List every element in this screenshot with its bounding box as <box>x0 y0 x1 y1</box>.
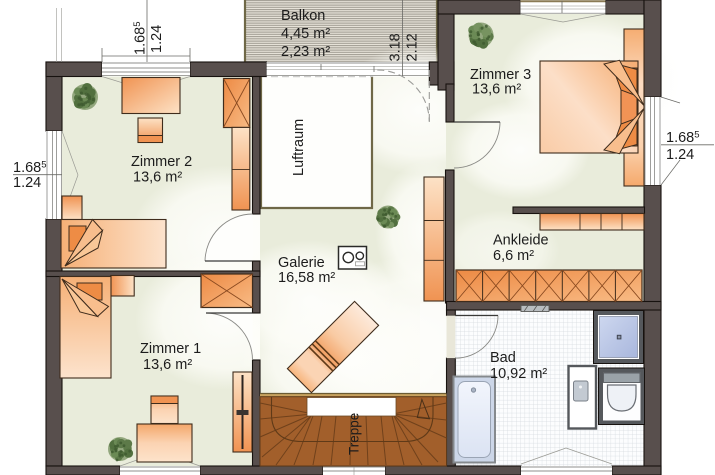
svg-text:1.24: 1.24 <box>149 25 165 53</box>
svg-text:Galerie: Galerie <box>278 255 325 271</box>
svg-text:1.24: 1.24 <box>13 175 41 191</box>
svg-text:13,6 m²: 13,6 m² <box>472 82 521 98</box>
svg-text:Bad: Bad <box>490 350 516 366</box>
svg-text:Zimmer 2: Zimmer 2 <box>131 154 192 170</box>
svg-text:2,23 m²: 2,23 m² <box>281 44 330 60</box>
svg-text:13,6 m²: 13,6 m² <box>143 357 192 373</box>
svg-text:Ankleide: Ankleide <box>493 233 549 249</box>
svg-text:1.24: 1.24 <box>666 147 694 163</box>
svg-text:16,58 m²: 16,58 m² <box>278 270 335 286</box>
svg-text:10,92 m²: 10,92 m² <box>490 366 547 382</box>
svg-text:4,45 m²: 4,45 m² <box>281 26 330 42</box>
svg-text:Zimmer 1: Zimmer 1 <box>140 341 201 357</box>
svg-text:13,6 m²: 13,6 m² <box>133 170 182 186</box>
svg-text:Balkon: Balkon <box>281 8 325 24</box>
svg-text:Treppe: Treppe <box>347 413 362 455</box>
svg-text:Luftraum: Luftraum <box>291 119 307 176</box>
svg-text:6,6 m²: 6,6 m² <box>493 248 534 264</box>
svg-text:2.12: 2.12 <box>405 33 421 61</box>
svg-text:3.18: 3.18 <box>388 33 404 61</box>
